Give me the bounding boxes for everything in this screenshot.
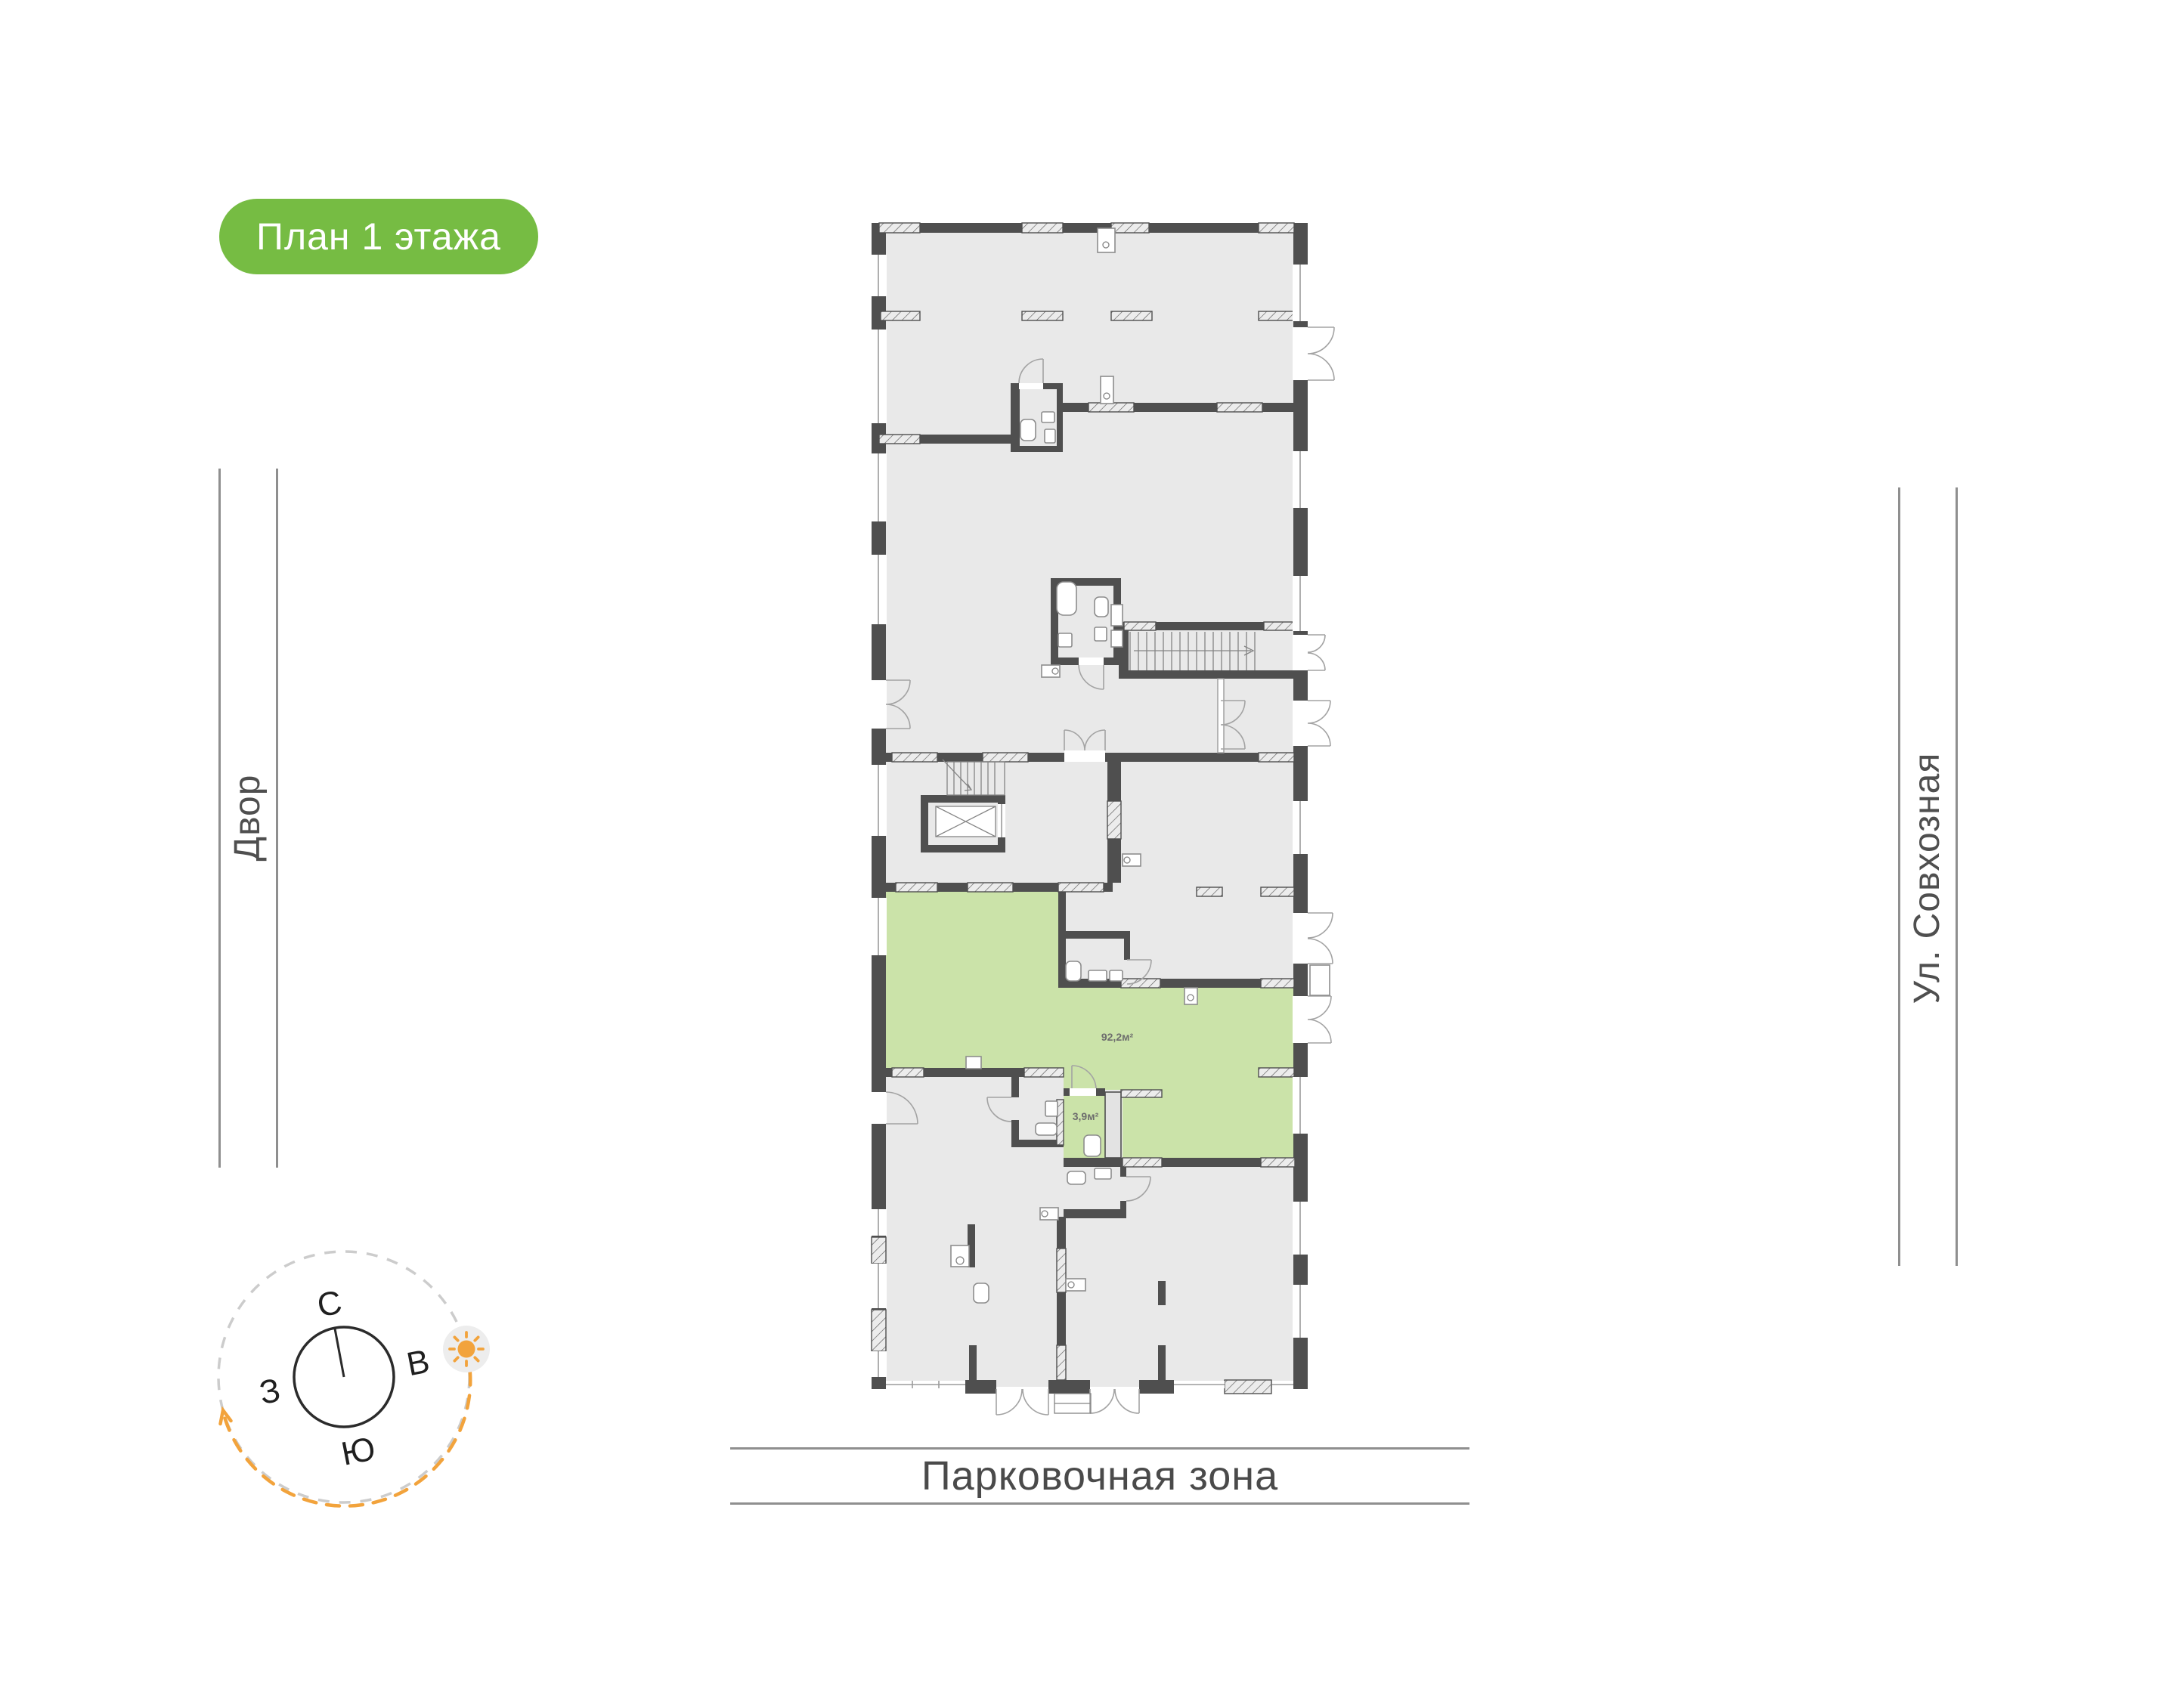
wc-area-label: 3,9м² xyxy=(1073,1110,1099,1122)
sun-icon xyxy=(443,1326,490,1372)
compass-west: З xyxy=(256,1372,283,1412)
compass-north: С xyxy=(314,1283,345,1324)
compass-east: В xyxy=(404,1343,432,1384)
street-line-inner xyxy=(1898,487,1900,1266)
parking-label: Парковочная зона xyxy=(873,1453,1327,1499)
unit-area-label: 92,2м² xyxy=(1101,1031,1134,1043)
street-label: Ул. Совхозная xyxy=(1905,689,1950,1067)
compass-south: Ю xyxy=(339,1430,379,1473)
street-line-outer xyxy=(1956,487,1958,1266)
floor-plan: 92,2м² 3,9м² xyxy=(816,174,1361,1443)
page: План 1 этажа Двор Ул. Совхозная Парковоч… xyxy=(0,0,2177,1708)
courtyard-line-inner xyxy=(276,469,278,1168)
parking-line-bottom xyxy=(730,1502,1469,1505)
elevator xyxy=(936,806,996,837)
compass-rose: С В З Ю xyxy=(256,1283,432,1472)
floor-badge: План 1 этажа xyxy=(219,199,538,274)
compass: С В З Ю xyxy=(181,1224,605,1527)
courtyard-line-outer xyxy=(218,469,221,1168)
parking-line-top xyxy=(730,1447,1469,1450)
courtyard-label: Двор xyxy=(225,667,271,969)
